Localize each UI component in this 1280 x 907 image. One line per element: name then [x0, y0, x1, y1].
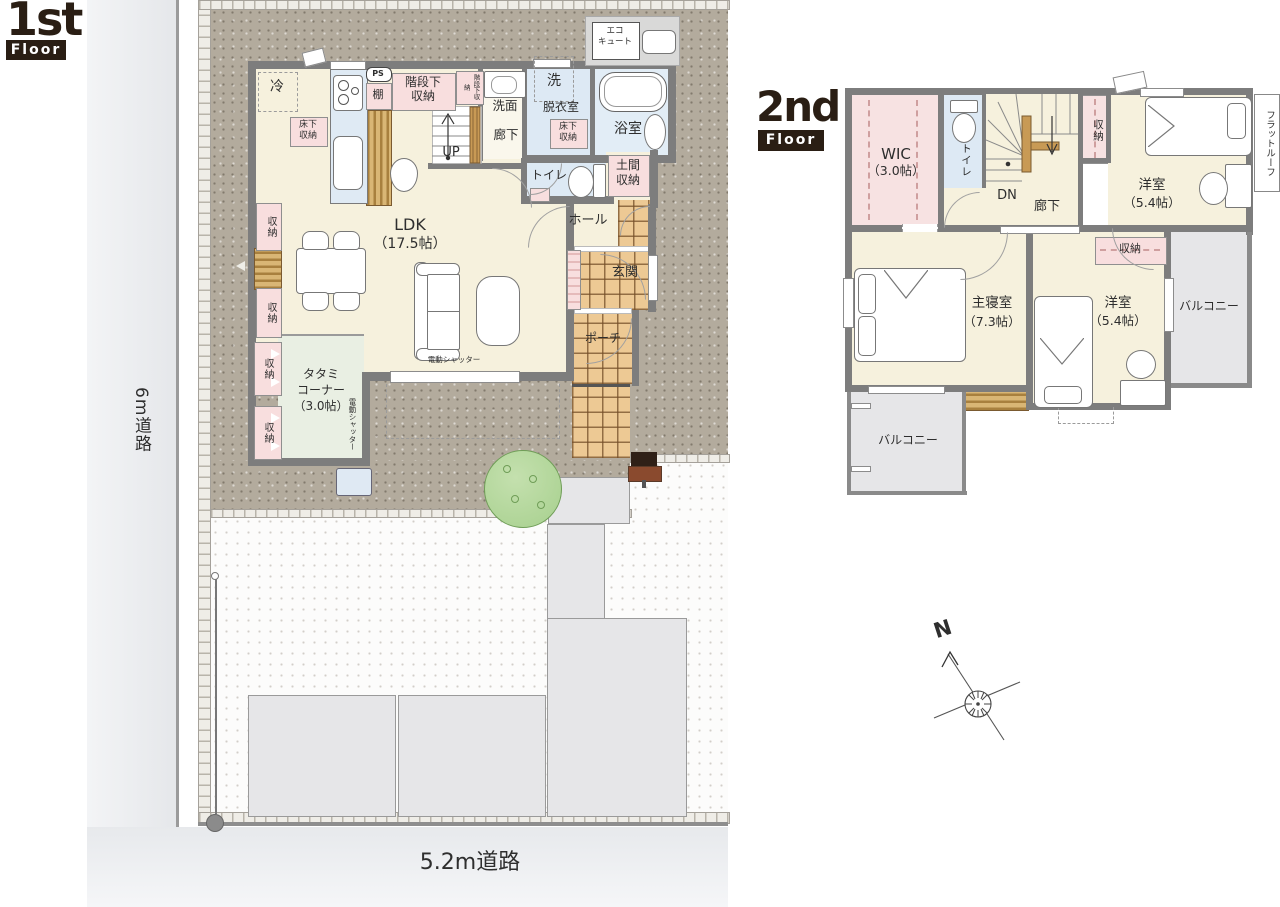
f1-understair-small-label: 階段下収納	[458, 73, 480, 101]
f1-west-louver-door	[254, 248, 282, 290]
f2-balcony-l-rail-mark	[851, 466, 871, 472]
f1-badge-word-text: Floor	[11, 42, 62, 58]
f1-underfloor-d2: 収納	[550, 133, 586, 143]
f2-balcony-right-label: バルコニー	[1172, 300, 1246, 314]
site-border-left	[198, 0, 211, 820]
f1-washbasin-bowl	[491, 76, 517, 94]
f1-dressing-label: 脱衣室	[534, 101, 588, 115]
f1-front-door	[648, 255, 658, 301]
f2-window-balcony-top	[1000, 226, 1080, 234]
f1-shutter-label-south: 電動シャッター	[420, 356, 488, 365]
entry-step-2	[547, 524, 605, 619]
f1-toilet-label: トイレ	[528, 169, 570, 183]
f2-window-master-south	[868, 386, 945, 394]
f2-master-pillow-1	[858, 274, 876, 314]
f2-bedroom-b-label: 洋室	[1086, 296, 1150, 311]
f1-bathtub-inner	[604, 76, 662, 107]
f2-wic-opening	[902, 224, 938, 232]
f2-window-master-west	[843, 278, 854, 328]
f1-sofa-seat	[427, 274, 460, 350]
f1-fridge-label: 冷	[262, 80, 292, 96]
f1-dining-chair	[302, 231, 329, 250]
f1-wall-doma-right	[650, 150, 658, 208]
f2-chair-b	[1126, 350, 1156, 379]
site-border-top	[198, 0, 730, 10]
f1-ldk-label: LDK	[360, 216, 460, 234]
f1-stove-burner	[338, 94, 349, 105]
f1-stove-burner	[351, 87, 359, 95]
f1-storage-tatami-1-label: 収納	[257, 350, 273, 388]
f1-wall-bath-right	[668, 61, 676, 163]
f1-ps-label: PS	[366, 69, 390, 78]
f1-kitchen-sink	[333, 136, 363, 190]
f2-corridor-label: 廊下	[1022, 200, 1072, 215]
f2-wic-size: （3.0帖）	[852, 164, 940, 178]
f2-flat-roof-label: フラットルーフ	[1258, 99, 1274, 187]
f2-bed-b-pillow	[1044, 386, 1082, 404]
f2-window-bedrooma-north	[1140, 88, 1184, 97]
f1-storage-west-1-label: 収納	[260, 208, 276, 246]
tree-detail-dot	[511, 495, 519, 503]
road-left-label: 6m道路	[120, 365, 150, 475]
f1-porch-step	[574, 308, 632, 314]
f2-desk-b	[1120, 380, 1166, 406]
f2-bedroom-a-label: 洋室	[1116, 178, 1188, 193]
boundary-line	[215, 578, 217, 814]
f2-stairs-down	[986, 94, 1078, 191]
f1-underfloor-k2: 収納	[290, 131, 326, 141]
f1-genkan-step	[574, 246, 650, 252]
f1-storage-west-2-label: 収納	[260, 294, 276, 332]
f2-wic-label: WIC	[852, 146, 940, 163]
f1-west-door-marker	[236, 261, 245, 271]
f1-stove	[333, 75, 363, 111]
f2-master-label: 主寝室	[958, 296, 1026, 311]
f1-underfloor-k1: 床下	[290, 120, 326, 130]
f2-master-bed-fold	[884, 270, 928, 302]
f2-balcony-r-wall-right	[1247, 232, 1252, 388]
tree-detail-dot	[503, 465, 511, 473]
f2-badge-word: Floor	[758, 130, 824, 151]
f1-bath-label: 浴室	[604, 122, 652, 138]
f2-roofline-dashed	[1058, 407, 1114, 424]
f1-underfloor-d1: 床下	[550, 122, 586, 132]
f2-desk-a	[1225, 164, 1252, 208]
road-bottom-curbline	[198, 822, 728, 826]
f1-tatami-edge	[278, 334, 364, 336]
f1-porch-approach-line	[572, 384, 630, 387]
f2-balcony-l-wall-bottom	[847, 491, 967, 495]
f1-kitchen-louver	[366, 110, 392, 206]
f1-badge-word: Floor	[6, 40, 66, 60]
f1-toilet-bowl	[568, 166, 594, 198]
f2-dn-label: DN	[992, 189, 1022, 204]
f1-wall-bath-left	[590, 63, 595, 158]
f1-hall-label: ホール	[556, 214, 620, 229]
f2-bedroom-a-size: （5.4帖）	[1112, 196, 1192, 210]
tree-detail-dot	[529, 475, 537, 483]
f2-closet-top-label: 収納	[1087, 108, 1103, 152]
tree-detail-dot	[537, 501, 545, 509]
f2-wall-left	[845, 88, 852, 390]
f2-chair-a	[1199, 172, 1228, 205]
boundary-marker	[211, 572, 219, 580]
f1-toilet-tank	[593, 164, 606, 198]
parking-space-1	[248, 695, 396, 817]
f2-toilet-tank	[950, 100, 978, 113]
f1-tatami-l3: （3.0帖）	[282, 400, 360, 414]
f2-bed-a-pillow	[1227, 103, 1246, 139]
mailbox-post	[642, 480, 646, 488]
f1-tatami-l1: タタミ	[282, 368, 360, 382]
f2-badge-word-text: Floor	[766, 132, 817, 148]
parking-space-2	[398, 695, 546, 817]
f1-shelf-label: 棚	[366, 89, 390, 102]
f1-shutter-zone	[386, 384, 560, 439]
f1-stove-burner	[338, 80, 349, 91]
f1-wall-tatami-right	[362, 378, 370, 466]
f1-dining-chair	[333, 292, 360, 311]
f1-doma-l1: 土間	[608, 159, 648, 173]
f2-wall-closet-bottom	[1078, 158, 1111, 163]
f1-badge-number: 1st	[6, 0, 70, 42]
f2-balcony-r-wall-bottom	[1171, 383, 1252, 388]
road-bottom-label: 5.2m道路	[380, 850, 560, 875]
parking-space-3	[547, 618, 687, 817]
f2-balcony-l-rail-mark	[851, 403, 871, 409]
tree	[484, 450, 562, 528]
f1-eco-l2: キュート	[592, 38, 638, 48]
f1-shoe-cabinet	[567, 250, 581, 310]
f1-dining-table	[296, 248, 366, 294]
f1-bathtub	[599, 72, 667, 112]
road-left-curb	[176, 0, 179, 827]
f2-master-pillow-2	[858, 316, 876, 356]
f1-doma-l2: 収納	[608, 174, 648, 188]
f1-sofa-cushion-line	[428, 311, 459, 312]
f1-outdoor-unit	[336, 468, 372, 496]
f2-toilet-label: トイレ	[955, 134, 971, 186]
f2-wall-closet-right	[1106, 88, 1111, 162]
f1-approach-tile	[572, 386, 630, 458]
f1-ldk-size: （17.5帖）	[352, 237, 468, 253]
f2-badge-number: 2nd	[756, 86, 832, 128]
f1-dining-chair	[302, 292, 329, 311]
f1-ecocute-tank	[642, 30, 676, 54]
f1-understair-l1: 階段下	[392, 76, 454, 90]
compass-icon	[908, 612, 1028, 742]
f2-bedroom-b-size: （5.4帖）	[1082, 314, 1154, 328]
f2-bed-b-fold	[1040, 338, 1084, 368]
f1-wash-label: 洗	[544, 74, 564, 90]
f2-closet-bedroomb-label: 収納	[1095, 243, 1165, 256]
f1-washbasin	[484, 71, 526, 98]
f1-window-ldk-south	[390, 371, 520, 383]
f1-porch-label: ポーチ	[578, 332, 628, 346]
f1-up-label: UP	[436, 146, 466, 161]
f2-balcony-l-wall-right	[962, 392, 966, 495]
f1-washroom-label: 洗面	[482, 99, 528, 113]
f1-wall-porch-right	[632, 310, 639, 386]
f1-tatami-l2: コーナー	[282, 384, 360, 398]
utility-pole	[206, 814, 224, 832]
f1-understair-l2: 収納	[392, 90, 454, 104]
f2-master-size: （7.3帖）	[954, 315, 1030, 329]
floor-plan-canvas: 6m道路 5.2m道路	[0, 0, 1280, 907]
f1-genkan-label: 玄関	[602, 266, 648, 281]
f1-storage-tatami-2-label: 収納	[257, 414, 273, 452]
f1-eco-l1: エコ	[592, 27, 638, 37]
f1-rug-table	[476, 276, 520, 346]
f2-bed-a-fold	[1148, 105, 1178, 147]
f2-balcony-left-label: バルコニー	[870, 434, 946, 448]
f1-corridor-label: 廊下	[484, 128, 528, 142]
